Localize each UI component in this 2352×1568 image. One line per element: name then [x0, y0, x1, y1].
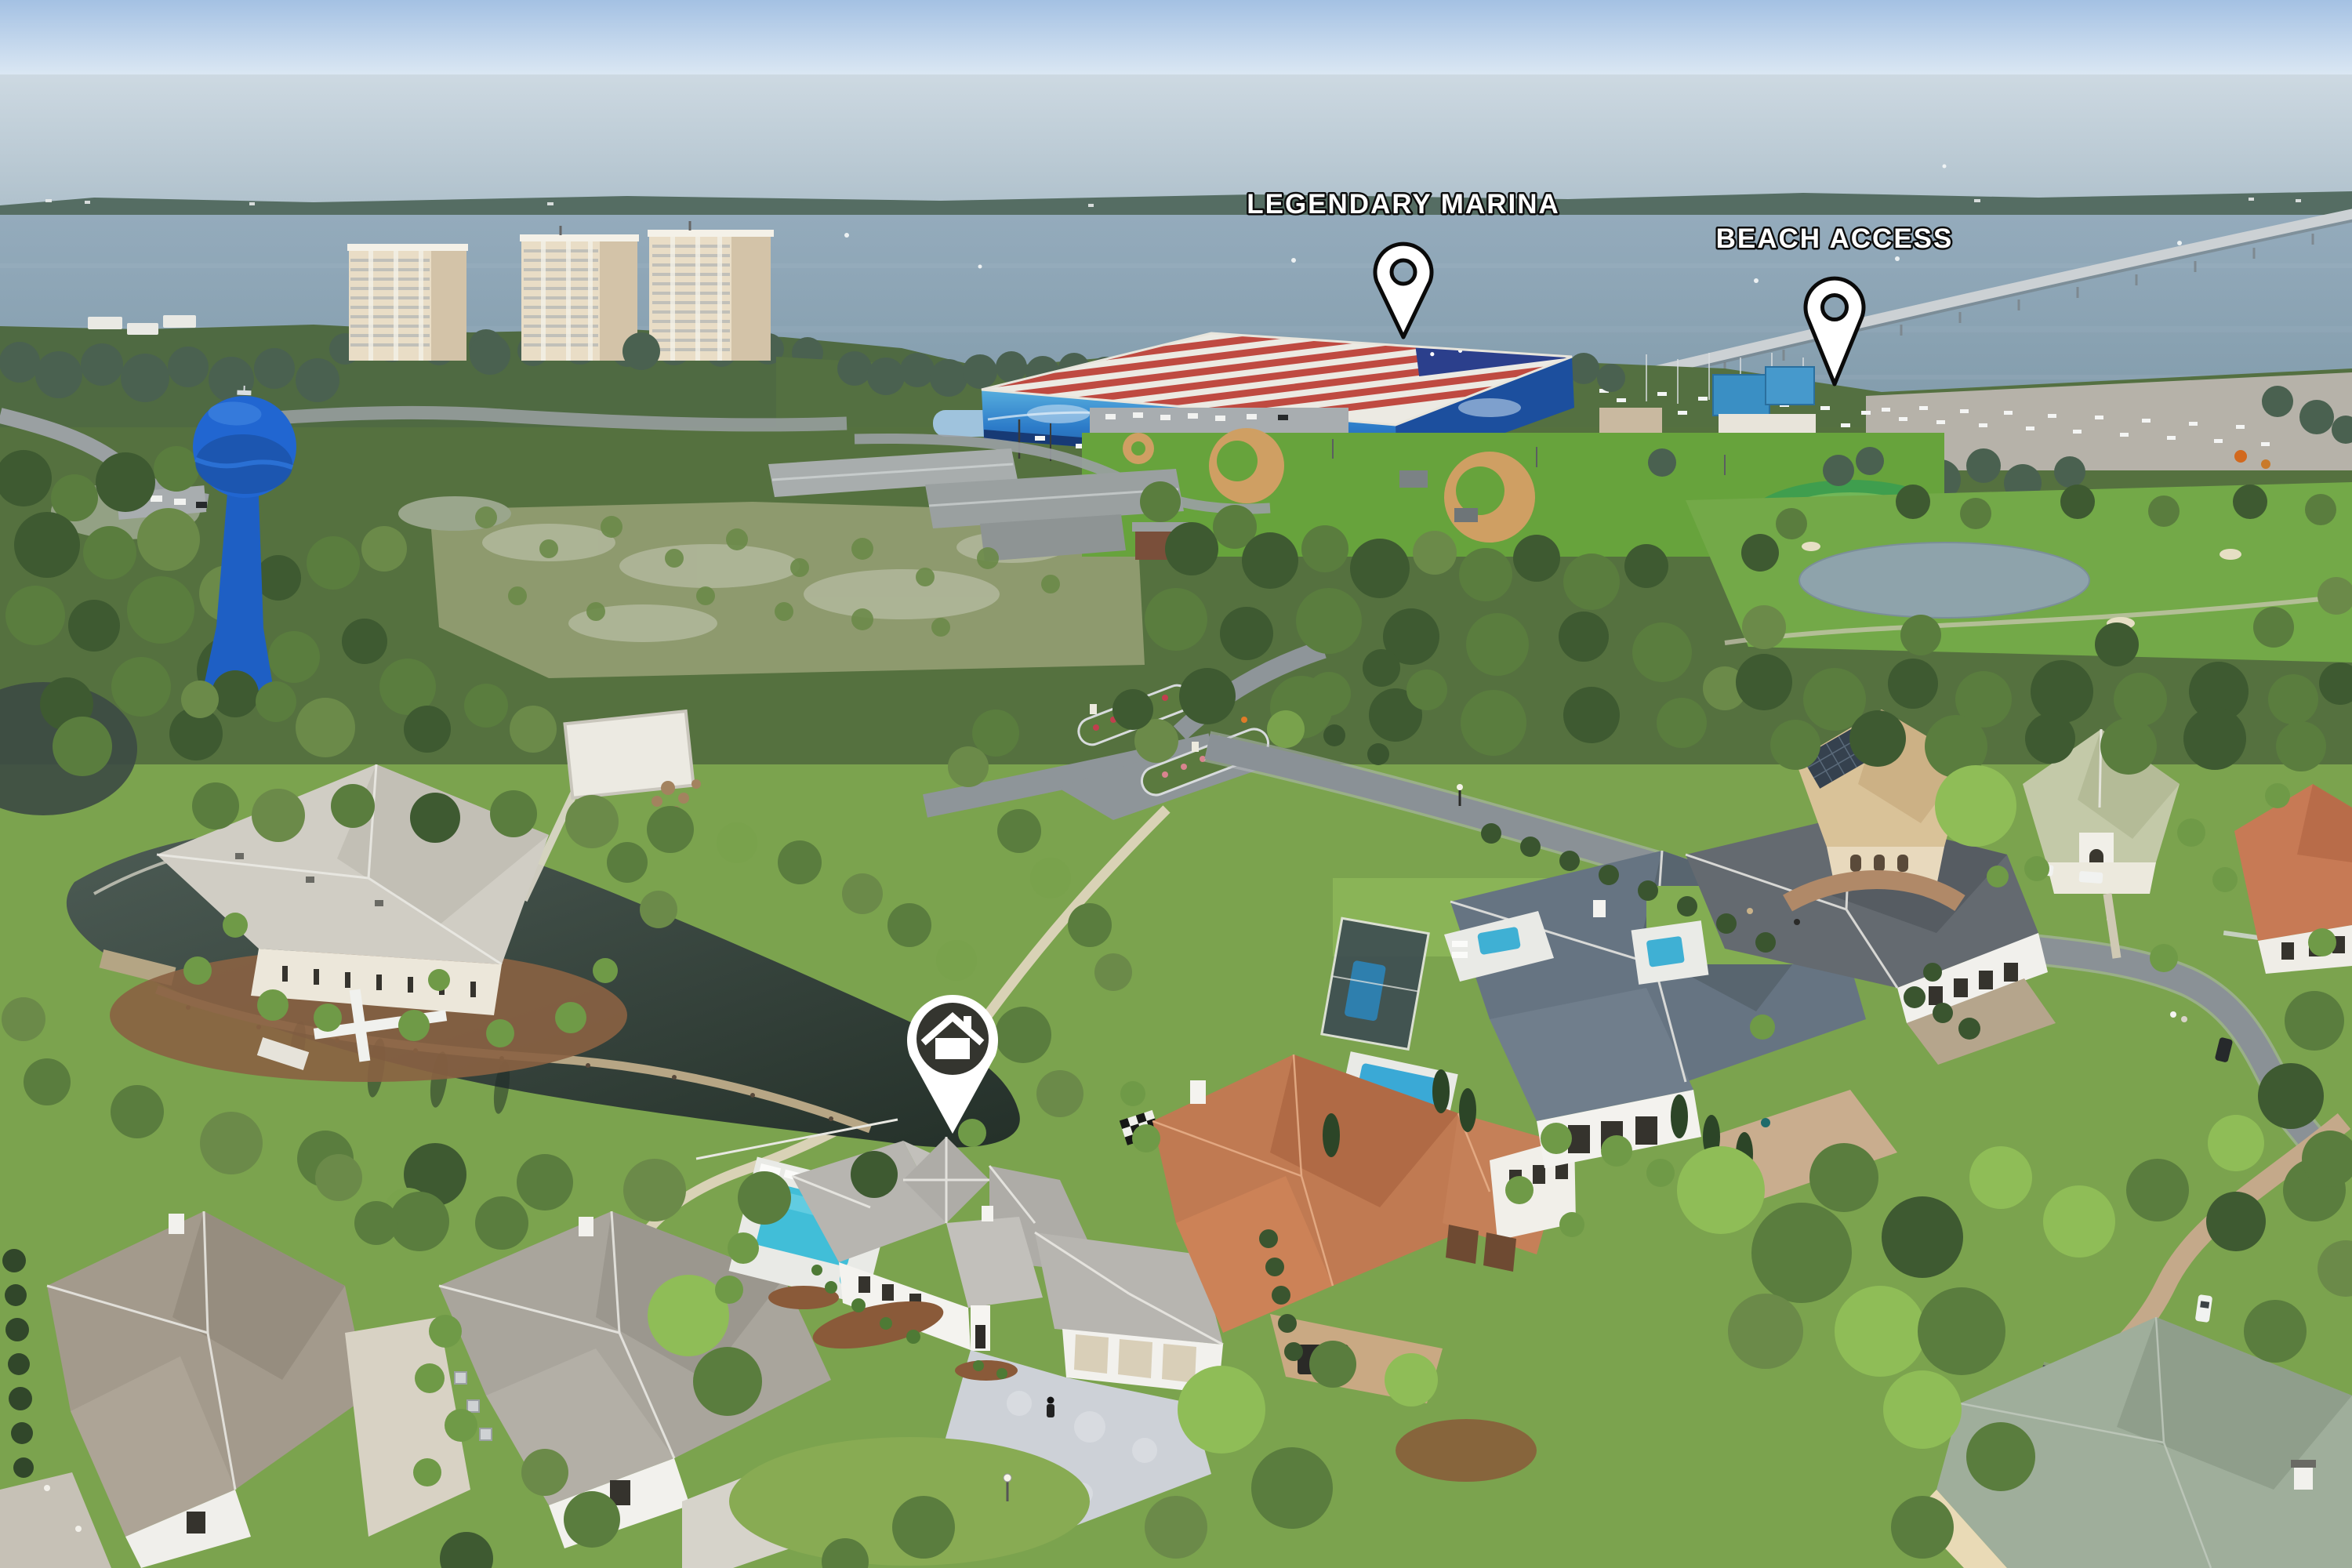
- condo-towers: [347, 221, 774, 375]
- aerial-photo: LEGENDARY MARINA BEACH ACCESS: [0, 0, 2352, 1568]
- beach-label: BEACH ACCESS: [1716, 223, 1954, 254]
- boathouse-pavilion: [1713, 367, 1816, 434]
- marina-label: LEGENDARY MARINA: [1247, 189, 1560, 220]
- condo-tower-3: [648, 221, 774, 361]
- condo-tower-1: [347, 244, 468, 361]
- sky: [0, 0, 2352, 78]
- condo-tower-2: [520, 226, 639, 361]
- pool-enclosure: [1322, 918, 1428, 1049]
